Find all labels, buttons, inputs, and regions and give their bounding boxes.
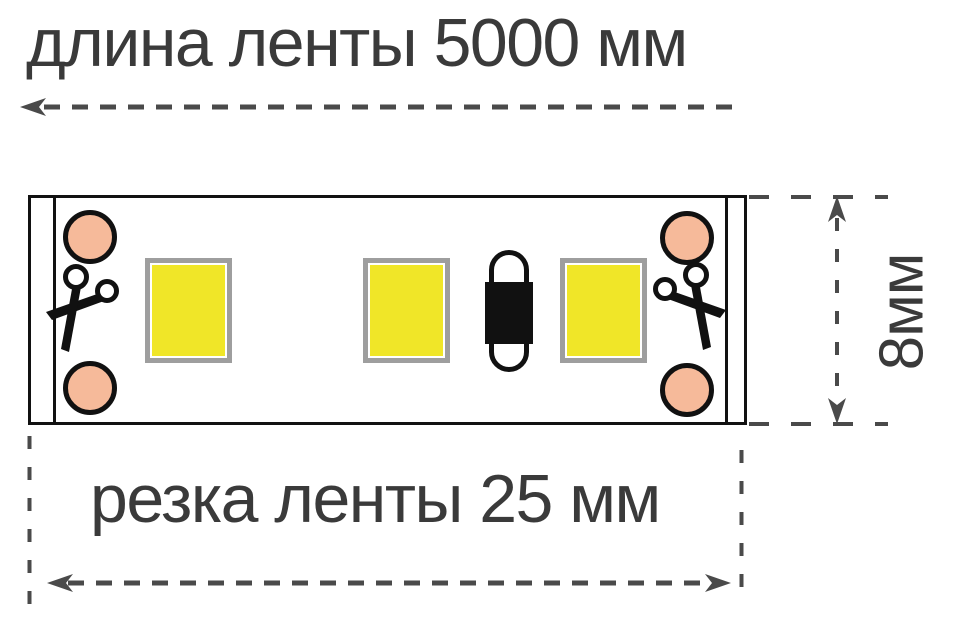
resistor-band <box>485 282 533 344</box>
length-dimension-line <box>20 98 741 116</box>
tape-length-label: длина ленты 5000 мм <box>26 6 687 80</box>
led-chip <box>363 258 450 363</box>
led-strip-diagram: длина ленты 5000 мм <box>0 0 959 622</box>
solder-pad <box>63 361 117 415</box>
led-strip-body <box>28 195 747 425</box>
scissors-icon <box>653 251 733 351</box>
arrow-left-icon <box>20 98 46 116</box>
tape-height-label: 8мм <box>867 254 938 371</box>
scissors-icon <box>39 253 119 353</box>
arrow-left-icon <box>47 574 73 592</box>
led-die <box>567 265 640 356</box>
led-chip <box>145 258 232 363</box>
led-chip <box>560 258 647 363</box>
tape-cut-label: резка ленты 25 мм <box>90 462 660 536</box>
arrow-up-icon <box>828 196 846 222</box>
solder-pad <box>660 363 714 417</box>
led-die <box>152 265 225 356</box>
arrow-right-icon <box>705 574 731 592</box>
led-die <box>370 265 443 356</box>
arrow-down-icon <box>828 398 846 424</box>
